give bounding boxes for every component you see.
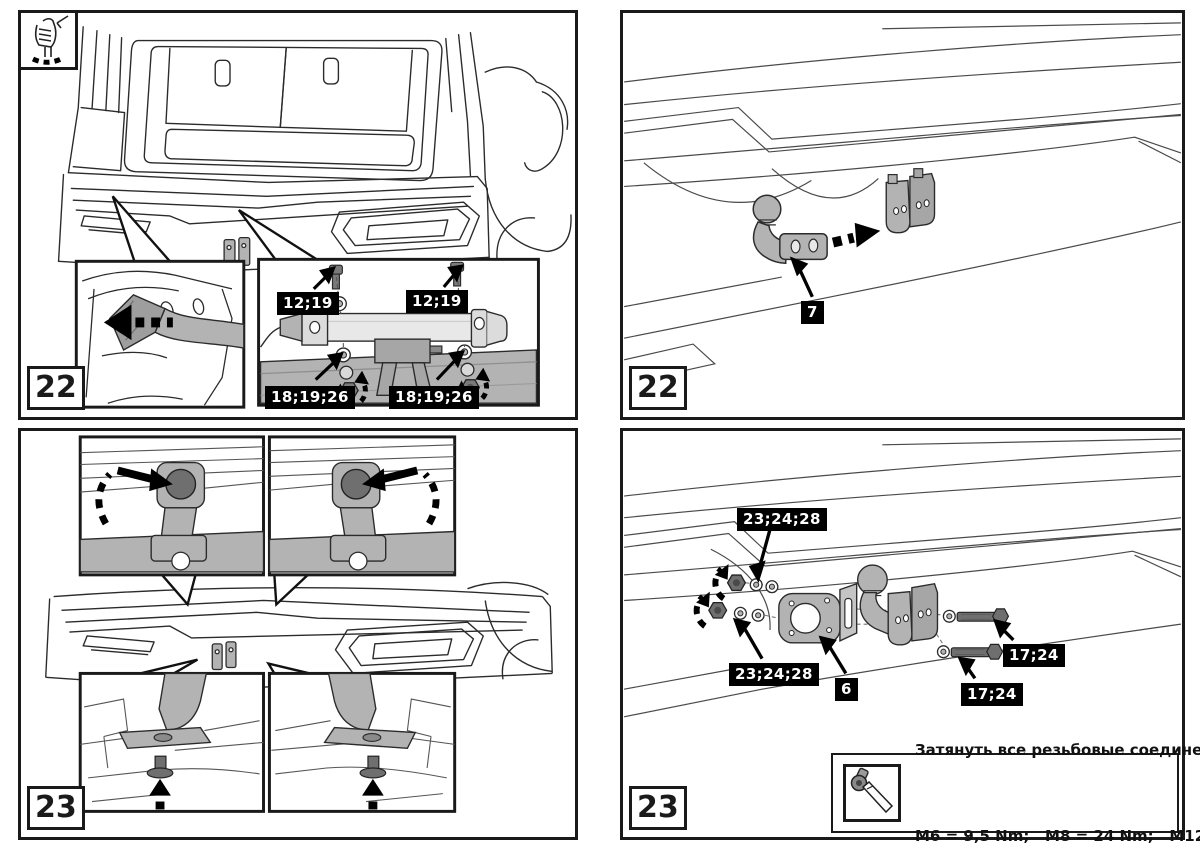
towball-insert-drawing	[623, 13, 1182, 417]
torque-note-text: Затянуть все резьбовые соединения М6 = 9…	[915, 679, 1200, 849]
step-number: 23	[629, 786, 687, 830]
torque-note-line2: М6 = 9,5 Nm; М8 = 24 Nm; М12 = 84 Nm.	[915, 822, 1200, 849]
hitch-bracket-drawing	[212, 642, 236, 670]
bumper-lines	[624, 439, 1181, 717]
receiver-bracket-drawing	[886, 169, 934, 233]
part-label-towbar: 7	[801, 301, 824, 324]
panel-23-brackets: 23	[18, 428, 578, 840]
car-rear-drawing	[21, 13, 575, 417]
panel-22-car-rear: 12;19 12;19 18;19;26 18;19;26 22	[18, 10, 578, 420]
hand-tighten-icon	[18, 10, 78, 70]
part-label-nut: 18;19;26	[389, 386, 479, 409]
torque-wrench-icon	[843, 764, 901, 822]
bolts-drawing	[937, 609, 1008, 659]
torque-note: Затянуть все резьбовые соединения М6 = 9…	[831, 753, 1179, 833]
step-number: 23	[27, 786, 85, 830]
part-label-nut-washer: 23;24;28	[737, 508, 827, 531]
label-arrow	[793, 259, 813, 296]
instruction-page: 12;19 12;19 18;19;26 18;19;26 22	[0, 0, 1200, 849]
part-label-nut-washer: 23;24;28	[729, 663, 819, 686]
towball-assembly-drawing	[858, 565, 938, 645]
panel-23-assembly: 23;24;28 23;24;28 6 17;24 17;24 Затянуть…	[620, 428, 1185, 840]
insert-direction-arrow-icon	[833, 223, 880, 248]
bracket-rotation-drawing	[21, 431, 575, 837]
part-label-nut: 18;19;26	[265, 386, 355, 409]
part-label-bolt: 12;19	[277, 292, 339, 315]
step-number: 22	[629, 366, 687, 410]
towball-drawing	[753, 195, 827, 263]
part-label-plate: 6	[835, 678, 858, 701]
panel-22-towball: 7 22	[620, 10, 1185, 420]
socket-plate-drawing	[779, 584, 857, 643]
part-label-bolt: 17;24	[1003, 644, 1065, 667]
torque-note-line1: Затянуть все резьбовые соединения	[915, 736, 1200, 765]
step-number: 22	[27, 366, 85, 410]
part-label-bolt: 12;19	[406, 290, 468, 313]
